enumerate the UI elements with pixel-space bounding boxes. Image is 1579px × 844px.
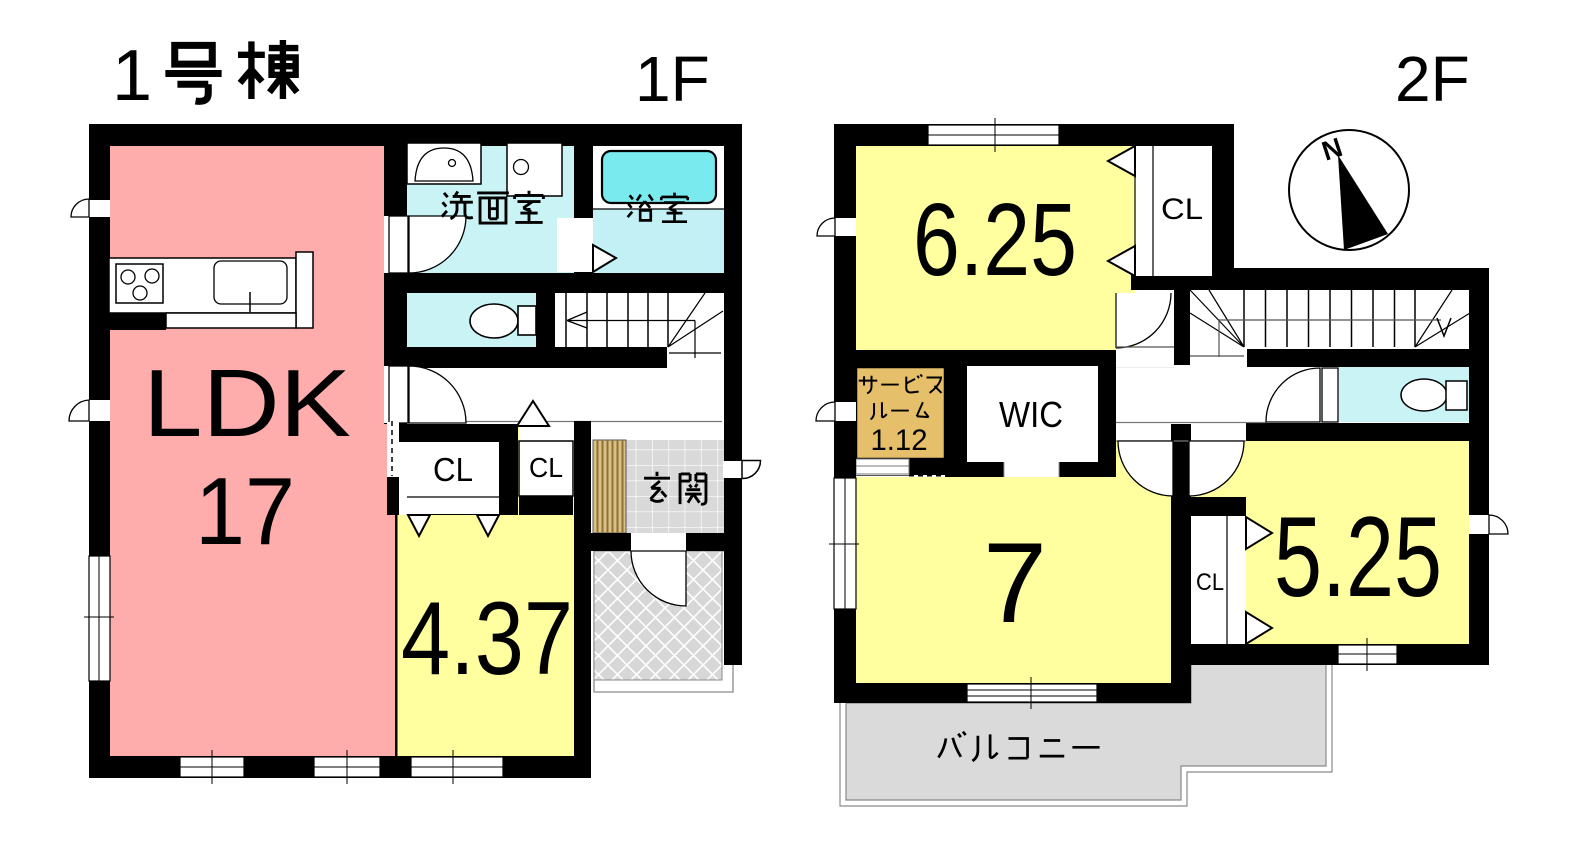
svg-text:WIC: WIC (999, 394, 1063, 435)
svg-text:CL: CL (529, 452, 563, 483)
svg-text:1: 1 (112, 36, 152, 116)
svg-text:5.25: 5.25 (1274, 494, 1442, 621)
svg-text:1F: 1F (635, 43, 710, 115)
svg-text:6.25: 6.25 (913, 182, 1077, 297)
svg-text:7: 7 (983, 520, 1047, 647)
svg-text:17: 17 (195, 458, 295, 565)
svg-text:LDK: LDK (143, 350, 351, 457)
svg-text:1.12: 1.12 (871, 424, 928, 457)
svg-text:2F: 2F (1395, 43, 1470, 115)
svg-text:CL: CL (1196, 569, 1224, 596)
svg-text:CL: CL (1161, 193, 1203, 226)
svg-text:4.37: 4.37 (401, 581, 573, 697)
svg-text:CL: CL (433, 451, 473, 488)
